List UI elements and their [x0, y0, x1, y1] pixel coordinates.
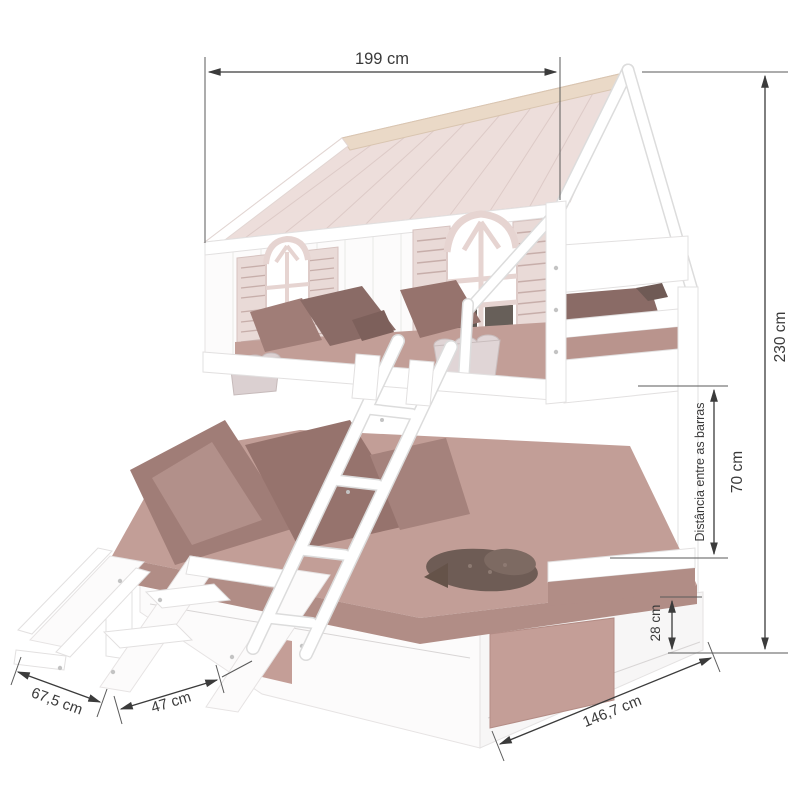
dim-right-height-label: 230 cm [772, 312, 789, 363]
diagram-canvas: 199 cm 230 cm Distância entre as barras … [0, 0, 800, 800]
side-top-rail [548, 236, 688, 294]
dim-top-width-label: 199 cm [355, 50, 409, 68]
dim-bars-gap-caption: Distância entre as barras [693, 403, 707, 542]
dim-leg-height-label: 28 cm [648, 605, 663, 642]
ladder-hook-left [352, 354, 380, 400]
ladder-hook-right [406, 360, 434, 406]
dim-slide-footprint-label: 67,5 cm [29, 684, 85, 718]
bunk-bed-dimension-diagram: 199 cm 230 cm Distância entre as barras … [0, 0, 800, 800]
dim-stairs-footprint-label: 47 cm [149, 688, 193, 716]
dim-bars-gap-label: 70 cm [729, 451, 746, 493]
house-corner-post [546, 201, 566, 404]
